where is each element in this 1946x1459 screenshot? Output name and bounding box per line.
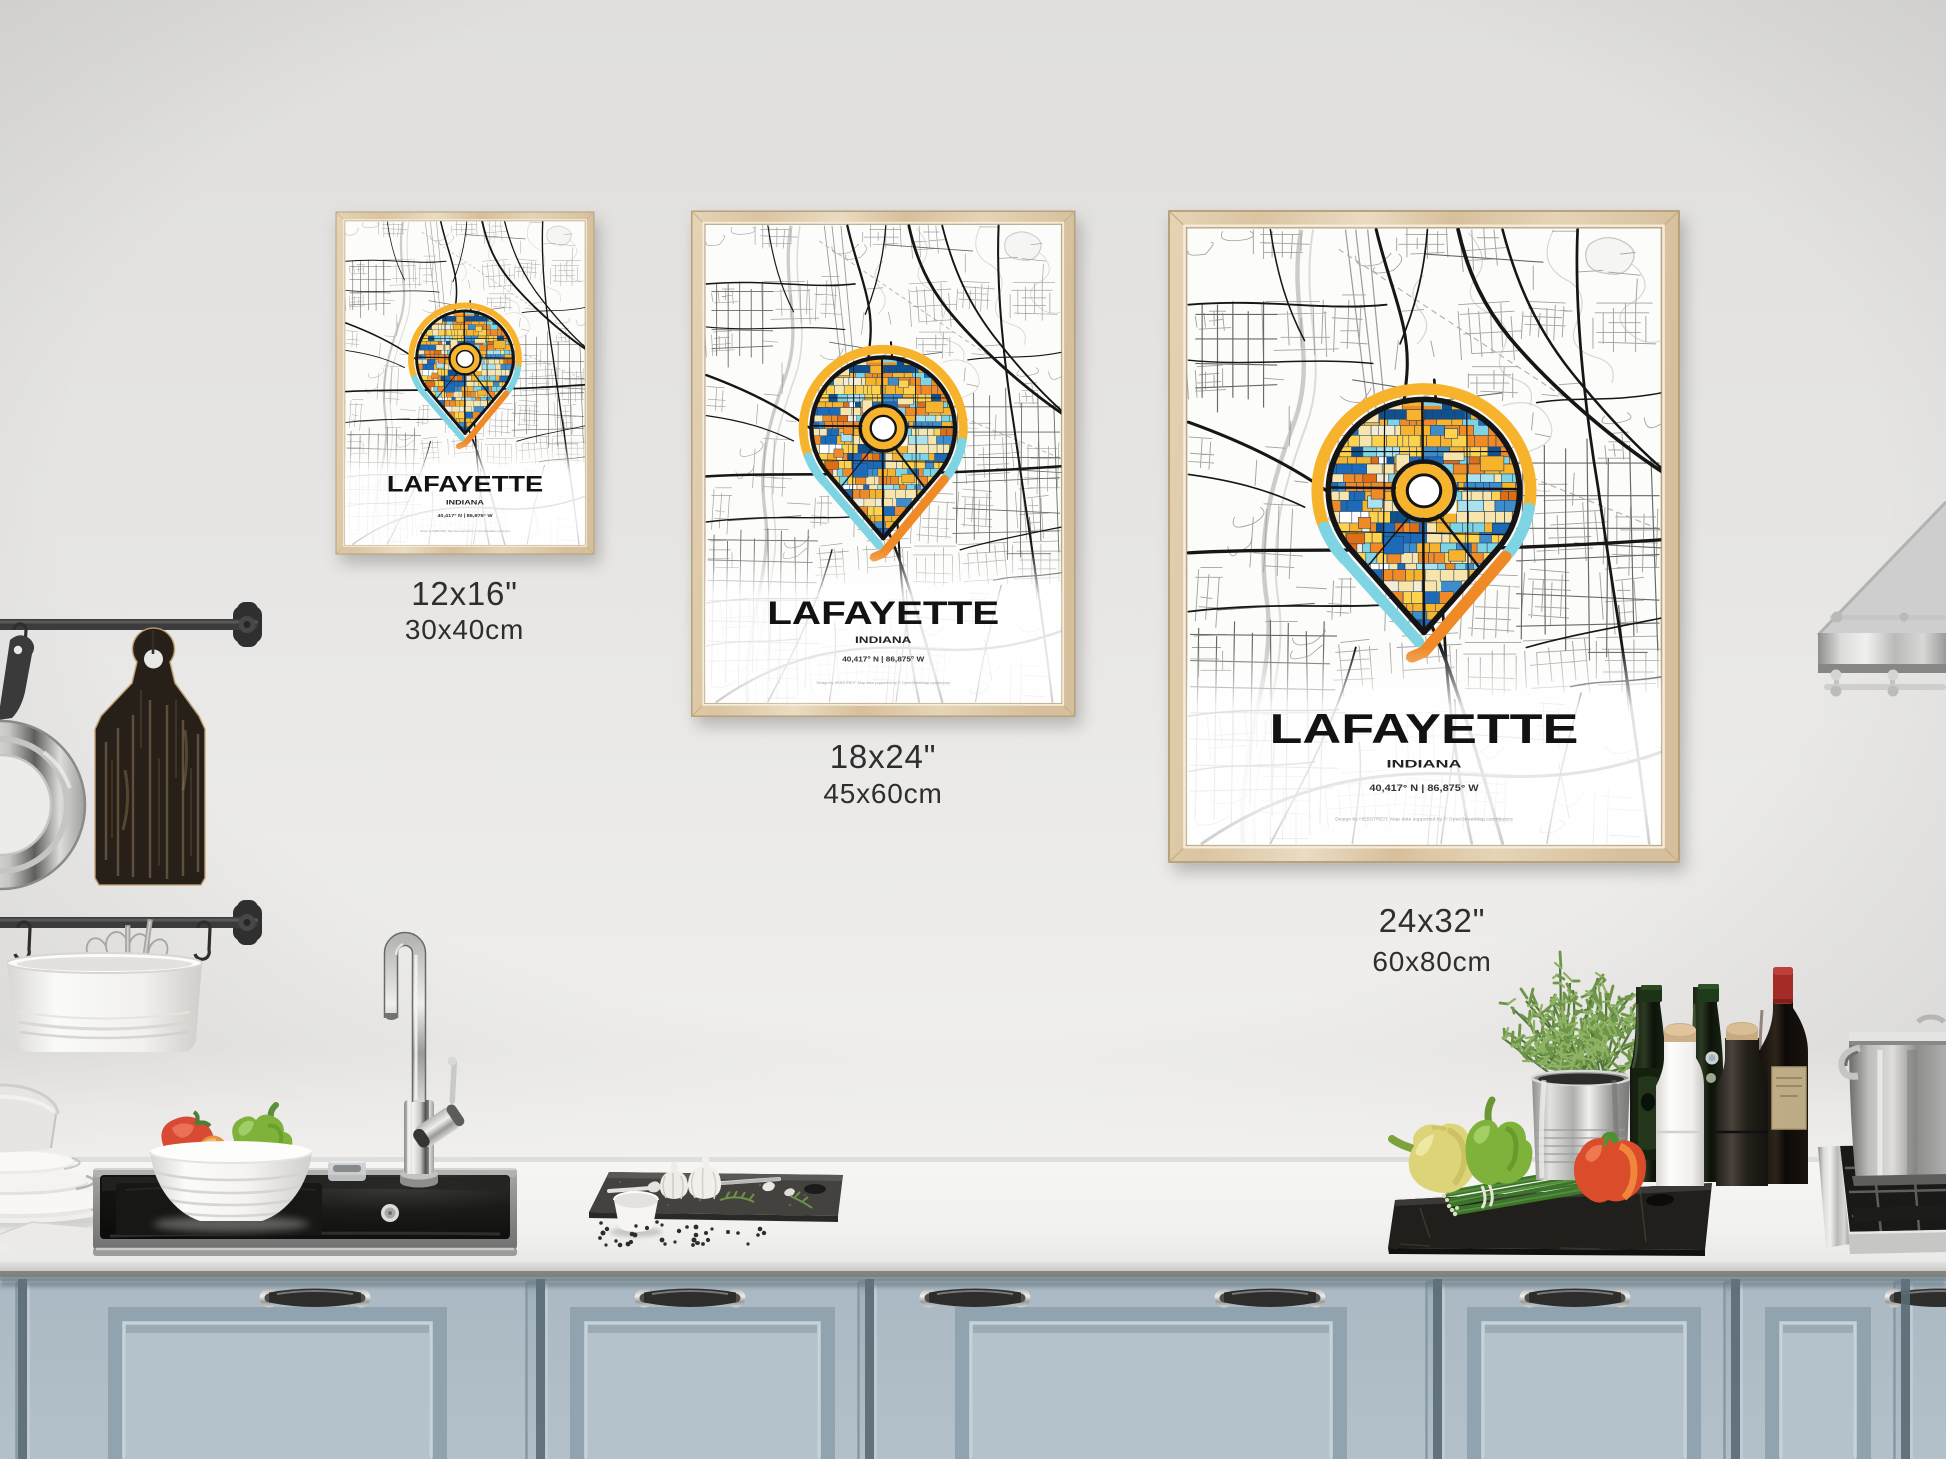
svg-text:60x80cm: 60x80cm (1372, 946, 1491, 977)
svg-text:18x24": 18x24" (830, 738, 936, 775)
svg-text:24x32": 24x32" (1379, 902, 1485, 939)
svg-text:30x40cm: 30x40cm (405, 614, 524, 645)
svg-text:45x60cm: 45x60cm (823, 778, 942, 809)
svg-text:12x16": 12x16" (411, 575, 517, 612)
